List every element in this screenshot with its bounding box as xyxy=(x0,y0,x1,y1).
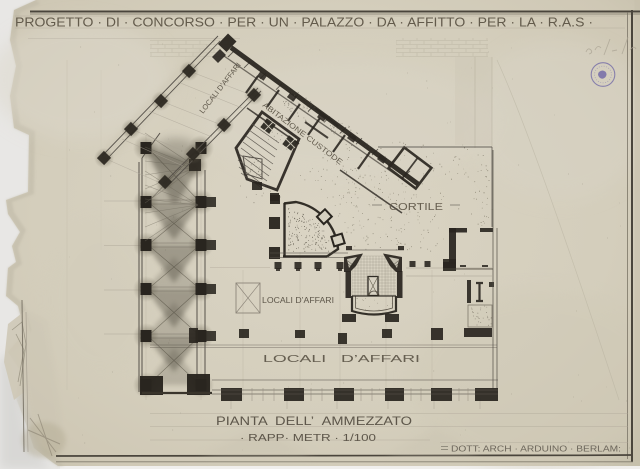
svg-text:DOTT: ARCH · ARDUINO · BERLAM:: DOTT: ARCH · ARDUINO · BERLAM: xyxy=(451,445,621,454)
svg-text:CORTILE: CORTILE xyxy=(389,201,443,213)
svg-text:PIANTA DELL’ AMMEZZATO: PIANTA DELL’ AMMEZZATO xyxy=(216,416,412,428)
svg-text:PROGETTO · DI · CONCORSO · PER: PROGETTO · DI · CONCORSO · PER · UN · PA… xyxy=(15,16,593,30)
svg-text:· RAPP· METR · 1/100: · RAPP· METR · 1/100 xyxy=(240,432,376,444)
svg-text:LOCALI D’AFFARI: LOCALI D’AFFARI xyxy=(262,296,334,305)
svg-text:LOCALI D’AFFARI: LOCALI D’AFFARI xyxy=(263,353,420,365)
